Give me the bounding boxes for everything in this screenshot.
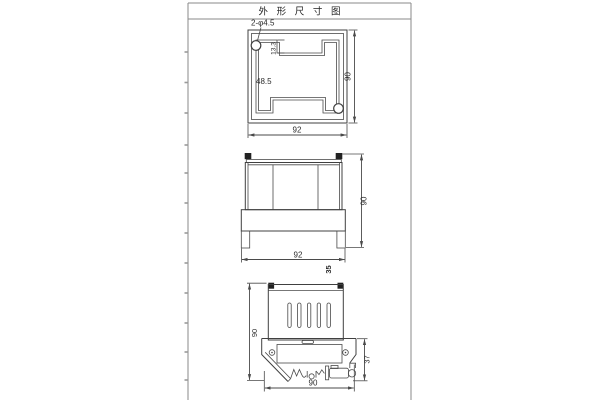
front-height-label: 90 — [360, 196, 369, 205]
clip-latch-bar — [326, 366, 329, 380]
hole-leader-line — [258, 28, 262, 41]
frame-scale-ticks — [185, 52, 189, 380]
clip-latch-body — [330, 368, 349, 378]
front-flange-outline — [241, 210, 345, 231]
hole-callout-label: 2-φ4.5 — [251, 19, 275, 28]
mounting-hole-top-left — [251, 41, 261, 51]
front-clip-right — [336, 153, 343, 159]
din-rail-clip — [288, 363, 356, 381]
top-width-label: 92 — [293, 126, 302, 135]
front-foot-left — [241, 231, 249, 248]
mounting-hole-bottom-right — [334, 104, 344, 114]
drawing-title: 外 形 尺 寸 图 — [258, 6, 343, 18]
notch-depth-label: 13.3 — [271, 42, 278, 55]
vent-slots — [288, 303, 331, 328]
base-inner-panel — [277, 345, 342, 364]
side-view: 90 37 90 — [247, 283, 372, 392]
side-height-label: 90 — [250, 329, 259, 337]
drawing-sheet: 外 形 尺 寸 图 2-φ4.5 13.3 48.5 92 — [0, 0, 600, 400]
front-foot-right — [337, 231, 345, 248]
dimension-drawing: 外 形 尺 寸 图 2-φ4.5 13.3 48.5 92 — [0, 0, 600, 400]
front-height-dimension: 90 — [343, 154, 369, 248]
top-view: 2-φ4.5 13.3 48.5 92 90 — [248, 19, 358, 139]
mounting-base — [262, 339, 356, 382]
front-width-dimension: 92 — [242, 249, 346, 263]
side-clip-left — [268, 283, 274, 289]
base-center-slot — [302, 341, 314, 344]
top-width-dimension: 92 — [248, 124, 347, 138]
front-width-label: 92 — [294, 251, 303, 260]
inner-width-label: 48.5 — [256, 77, 272, 86]
side-clip-right — [338, 283, 344, 289]
front-clip-left — [245, 153, 252, 159]
side-clip-label: 37 — [363, 355, 372, 363]
top-height-label: 90 — [344, 72, 353, 81]
front-depth-label: 35 — [324, 265, 333, 273]
side-width-label: 90 — [309, 379, 318, 388]
front-body-outline — [245, 163, 342, 210]
side-height-dimension: 90 — [247, 283, 267, 380]
front-view: 90 92 35 — [241, 153, 368, 274]
top-height-dimension: 90 — [344, 30, 358, 123]
side-body-outline — [268, 285, 343, 341]
